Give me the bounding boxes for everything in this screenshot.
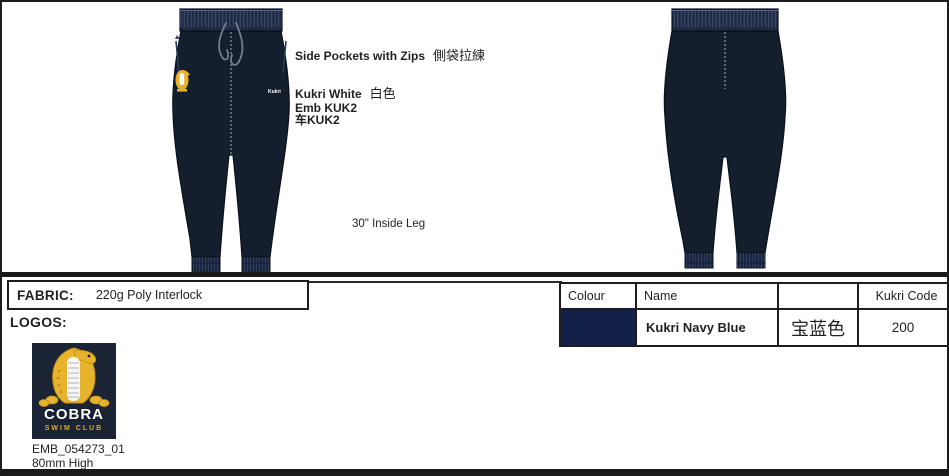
fabric-label: FABRIC:	[17, 288, 74, 303]
fabric-box: FABRIC: 220g Poly Interlock	[7, 280, 309, 310]
colour-table-data-row: Kukri Navy Blue 宝蓝色 200	[561, 310, 947, 345]
annotation-inside-leg: 30" Inside Leg	[352, 218, 425, 231]
logo-title-text: COBRA	[44, 407, 104, 422]
kukri-white-line: Kukri White白色	[295, 88, 396, 102]
colour-chinese-cell: 宝蓝色	[779, 310, 859, 345]
annotation-side-pockets: Side Pockets with Zips側袋拉練	[295, 50, 485, 63]
logo-subtitle-text: SWIM CLUB	[45, 424, 103, 434]
hip-brand-text: Kukri	[268, 89, 281, 95]
zip-pull	[175, 35, 180, 39]
pants-front-graphic: Kukri	[165, 7, 297, 274]
embroidery-size-note: 80mm High	[32, 456, 93, 470]
colour-table: Colour Name Kukri Code Kukri Navy Blue 宝…	[559, 282, 949, 347]
spec-sheet-page: Kukri Side Pockets with Zips側袋拉練	[0, 0, 949, 476]
kukri-white-text-zh: 白色	[370, 87, 396, 102]
swatch-cell	[561, 310, 637, 345]
annotation-colour-spec: Kukri White白色 Emb KUK2 车KUK2	[295, 88, 396, 127]
fabric-value: 220g Poly Interlock	[96, 288, 202, 302]
colour-name-cell: Kukri Navy Blue	[637, 310, 779, 345]
pants-back-graphic	[655, 7, 795, 270]
cobra-snake-icon	[32, 345, 116, 407]
kukri-white-text-en: Kukri White	[295, 87, 362, 101]
header-colour: Colour	[561, 284, 637, 310]
cobra-swim-club-logo: COBRA SWIM CLUB	[32, 343, 116, 439]
header-chinese	[779, 284, 859, 310]
side-pockets-text-zh: 側袋拉練	[433, 49, 485, 64]
section-divider-bar	[2, 272, 949, 277]
bottom-border-bar	[2, 469, 949, 474]
navy-colour-swatch	[561, 310, 635, 345]
side-pockets-text-en: Side Pockets with Zips	[295, 49, 425, 63]
embroidery-code: EMB_054273_01	[32, 442, 125, 456]
waistband-back-rib-texture	[672, 10, 778, 30]
kukri-code-cell: 200	[859, 310, 947, 345]
logos-section-label: LOGOS:	[10, 314, 67, 330]
header-kukri-code: Kukri Code	[859, 284, 947, 310]
colour-table-header-row: Colour Name Kukri Code	[561, 284, 947, 310]
waistband-rib-texture	[180, 10, 282, 30]
header-name: Name	[637, 284, 779, 310]
connecting-rule	[302, 281, 562, 283]
sew-code-line: 车KUK2	[295, 114, 396, 127]
